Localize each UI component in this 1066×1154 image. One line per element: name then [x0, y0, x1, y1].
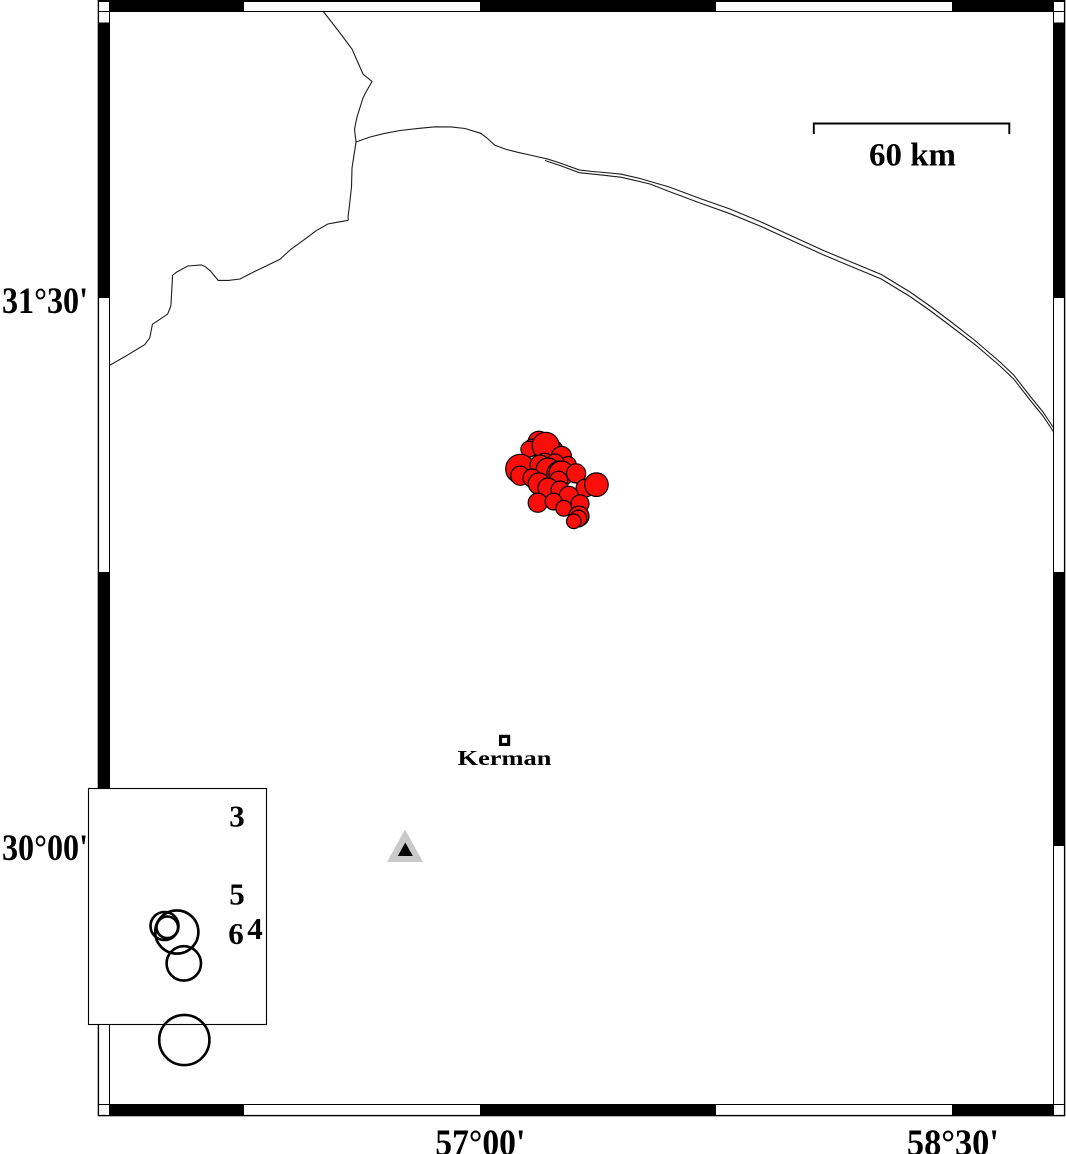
svg-text:58°30': 58°30' — [907, 1123, 999, 1154]
svg-text:57°00': 57°00' — [435, 1123, 525, 1154]
svg-text:4: 4 — [247, 911, 263, 946]
svg-text:Kerman: Kerman — [458, 746, 552, 770]
svg-text:3: 3 — [229, 799, 245, 834]
svg-text:30°00': 30°00' — [2, 828, 88, 869]
svg-text:6: 6 — [228, 916, 244, 951]
svg-text:31°30': 31°30' — [2, 281, 88, 322]
svg-text:60 km: 60 km — [869, 138, 956, 174]
svg-text:5: 5 — [229, 877, 245, 912]
